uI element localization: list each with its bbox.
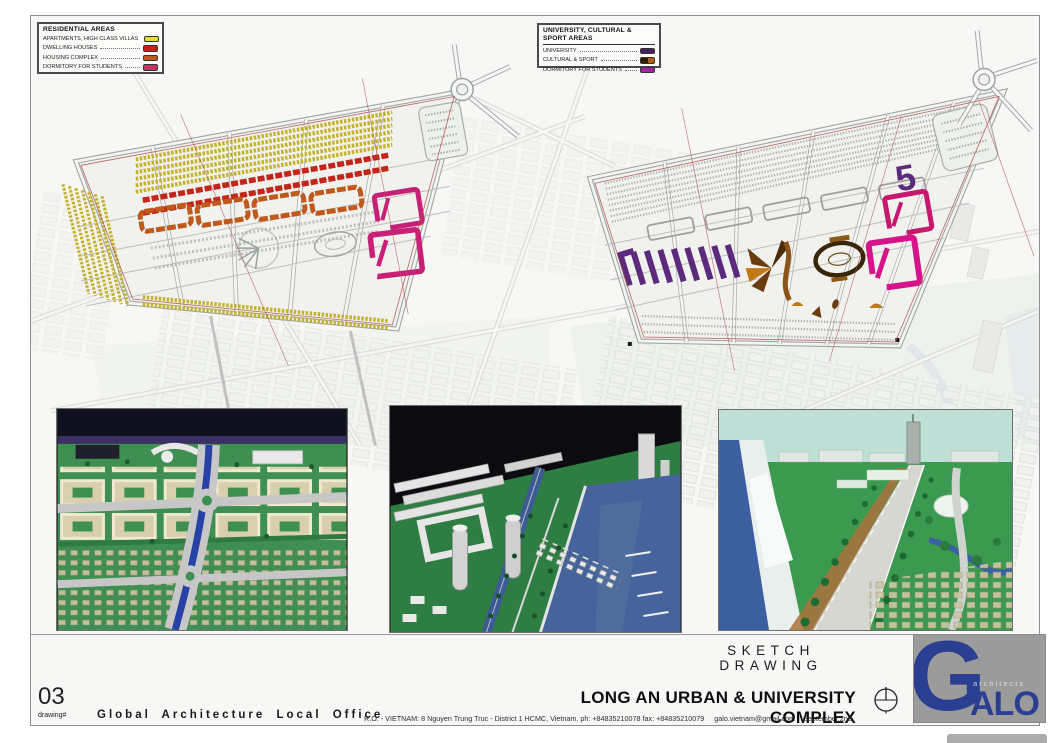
legend-item: HOUSING COMPLEX — [43, 53, 158, 63]
titleblock-divider-line — [31, 634, 1039, 635]
drawing-sheet: 5 — [30, 15, 1040, 726]
galo-logo: G architects ALO — [914, 635, 1045, 722]
firm-address: R.O. - VIETNAM: 8 Nguyen Trung Truc - Di… — [364, 714, 704, 723]
legend-color-swatch — [640, 67, 655, 74]
firm-contact-row: R.O. - VIETNAM: 8 Nguyen Trung Truc - Di… — [364, 714, 912, 723]
logo-letters-alo: ALO — [970, 685, 1039, 722]
legend-item: DORMITORY FOR STUDENTS — [543, 65, 655, 75]
legend-color-swatch — [143, 55, 158, 62]
legend-leader-line — [625, 69, 637, 71]
legend-item: APARTMENTS, HIGH CLASS VILLAS — [43, 34, 158, 44]
legend-title: UNIVERSITY, CULTURAL & SPORT AREAS — [543, 27, 655, 45]
sheet-date: September,2nd — [803, 714, 852, 723]
firm-email: galo.vietnam@gmail.com — [714, 714, 795, 723]
bottom-right-gray-tab — [947, 734, 1047, 743]
legend-leader-line — [101, 57, 140, 59]
render-aerial-boulevard — [56, 408, 348, 631]
render-2-image — [390, 406, 681, 632]
drawing-number: 03 — [38, 686, 65, 708]
legend-color-swatch — [143, 45, 158, 52]
legend-item-label: DORMITORY FOR STUDENTS — [43, 64, 122, 70]
legend-color-swatch — [640, 48, 655, 55]
legend-residential-areas: RESIDENTIAL AREAS APARTMENTS, HIGH CLASS… — [37, 22, 164, 74]
legend-university-areas: UNIVERSITY, CULTURAL & SPORT AREAS UNIVE… — [537, 23, 661, 68]
legend-leader-line — [100, 47, 140, 49]
legend-leader-line — [125, 66, 140, 68]
drawing-number-label: drawing# — [38, 712, 66, 719]
legend-item-label: DORMITORY FOR STUDENTS — [543, 67, 622, 73]
legend-item-label: UNIVERSITY — [543, 48, 577, 54]
legend-item: DORMITORY FOR STUDENTS — [43, 63, 158, 73]
drawing-sheet-page: { "sheet": { "background": "#f7f7f5", "b… — [0, 0, 1051, 743]
render-canal-towers — [389, 405, 682, 633]
firm-name: Global Architecture Local Office — [97, 709, 383, 721]
legend-color-swatch — [640, 57, 655, 64]
sheet-type-label: SKETCH DRAWING — [671, 643, 871, 673]
legend-leader-line — [601, 59, 637, 61]
legend-item: CULTURAL & SPORT — [543, 56, 655, 66]
legend-item-label: HOUSING COMPLEX — [43, 55, 98, 61]
legend-item: DWELLING HOUSES — [43, 44, 158, 54]
legend-item-label: DWELLING HOUSES — [43, 45, 97, 51]
render-3-image — [719, 410, 1012, 630]
legend-color-swatch — [143, 64, 158, 71]
legend-leader-line — [580, 50, 637, 52]
legend-color-swatch — [144, 36, 159, 43]
render-campus-boulevard — [718, 409, 1013, 631]
north-arrow-icon — [871, 684, 901, 714]
maze-block-left — [418, 101, 469, 161]
legend-item: UNIVERSITY — [543, 46, 655, 56]
legend-item-label: CULTURAL & SPORT — [543, 57, 598, 63]
render-1-image — [57, 409, 347, 630]
legend-title: RESIDENTIAL AREAS — [43, 26, 158, 34]
legend-item-label: APARTMENTS, HIGH CLASS VILLAS — [43, 36, 138, 42]
